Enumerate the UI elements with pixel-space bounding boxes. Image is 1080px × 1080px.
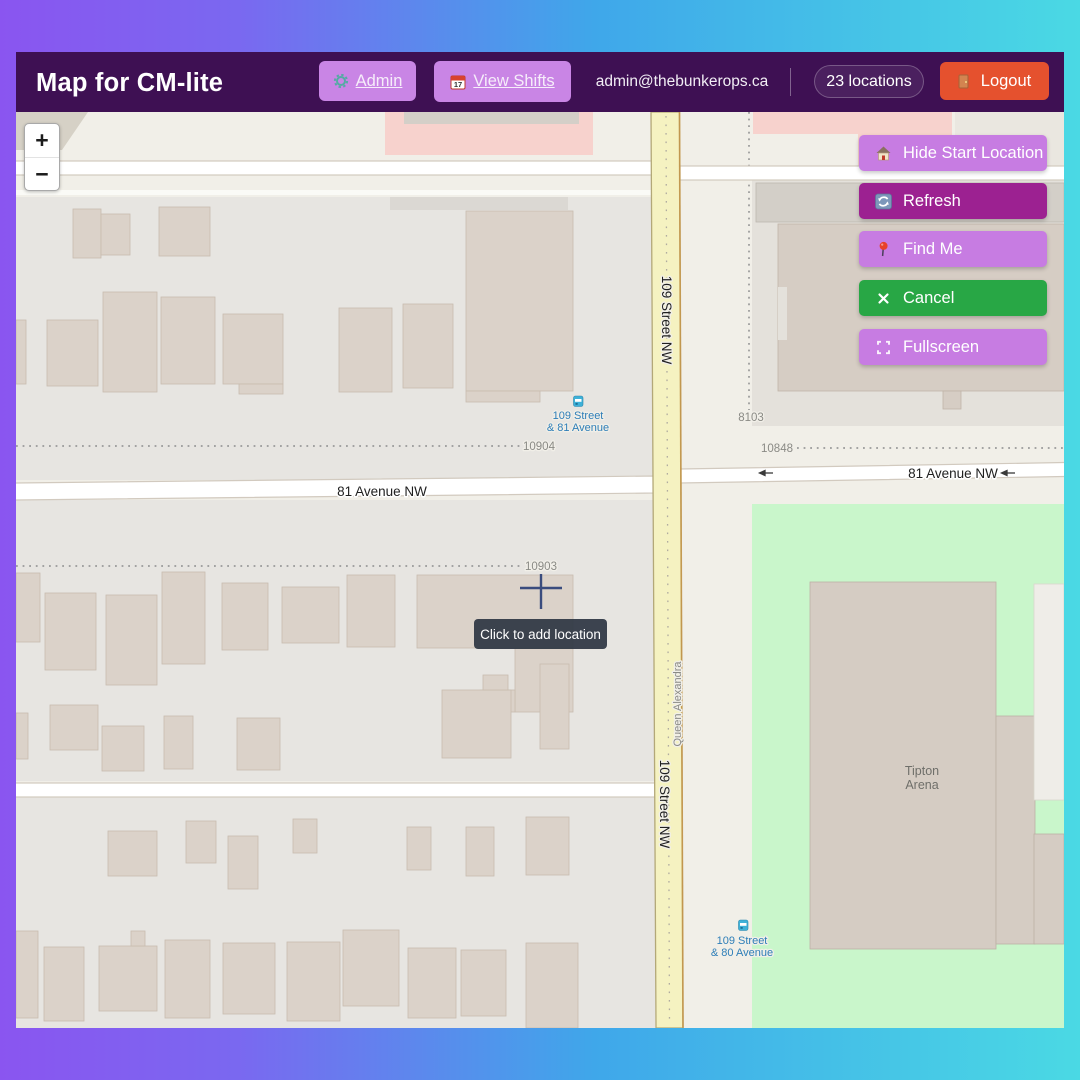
svg-text:Arena: Arena (905, 778, 938, 792)
svg-text:81 Avenue NW: 81 Avenue NW (337, 484, 427, 499)
svg-text:109 Street NW: 109 Street NW (659, 276, 674, 365)
svg-text:8103: 8103 (738, 412, 764, 424)
svg-text:17: 17 (454, 80, 462, 89)
svg-text:109 Street: 109 Street (717, 935, 768, 947)
svg-text:& 80 Avenue: & 80 Avenue (711, 947, 773, 959)
svg-text:Tipton: Tipton (905, 764, 939, 778)
svg-text:10848: 10848 (761, 443, 793, 455)
svg-text:10904: 10904 (523, 441, 556, 453)
svg-text:10903: 10903 (525, 561, 557, 573)
svg-text:Queen Alexandra: Queen Alexandra (672, 661, 684, 747)
svg-text:109 Street NW: 109 Street NW (657, 760, 672, 849)
svg-text:& 81 Avenue: & 81 Avenue (547, 422, 609, 434)
svg-text:81 Avenue NW: 81 Avenue NW (908, 466, 998, 481)
svg-text:109 Street: 109 Street (553, 410, 604, 422)
